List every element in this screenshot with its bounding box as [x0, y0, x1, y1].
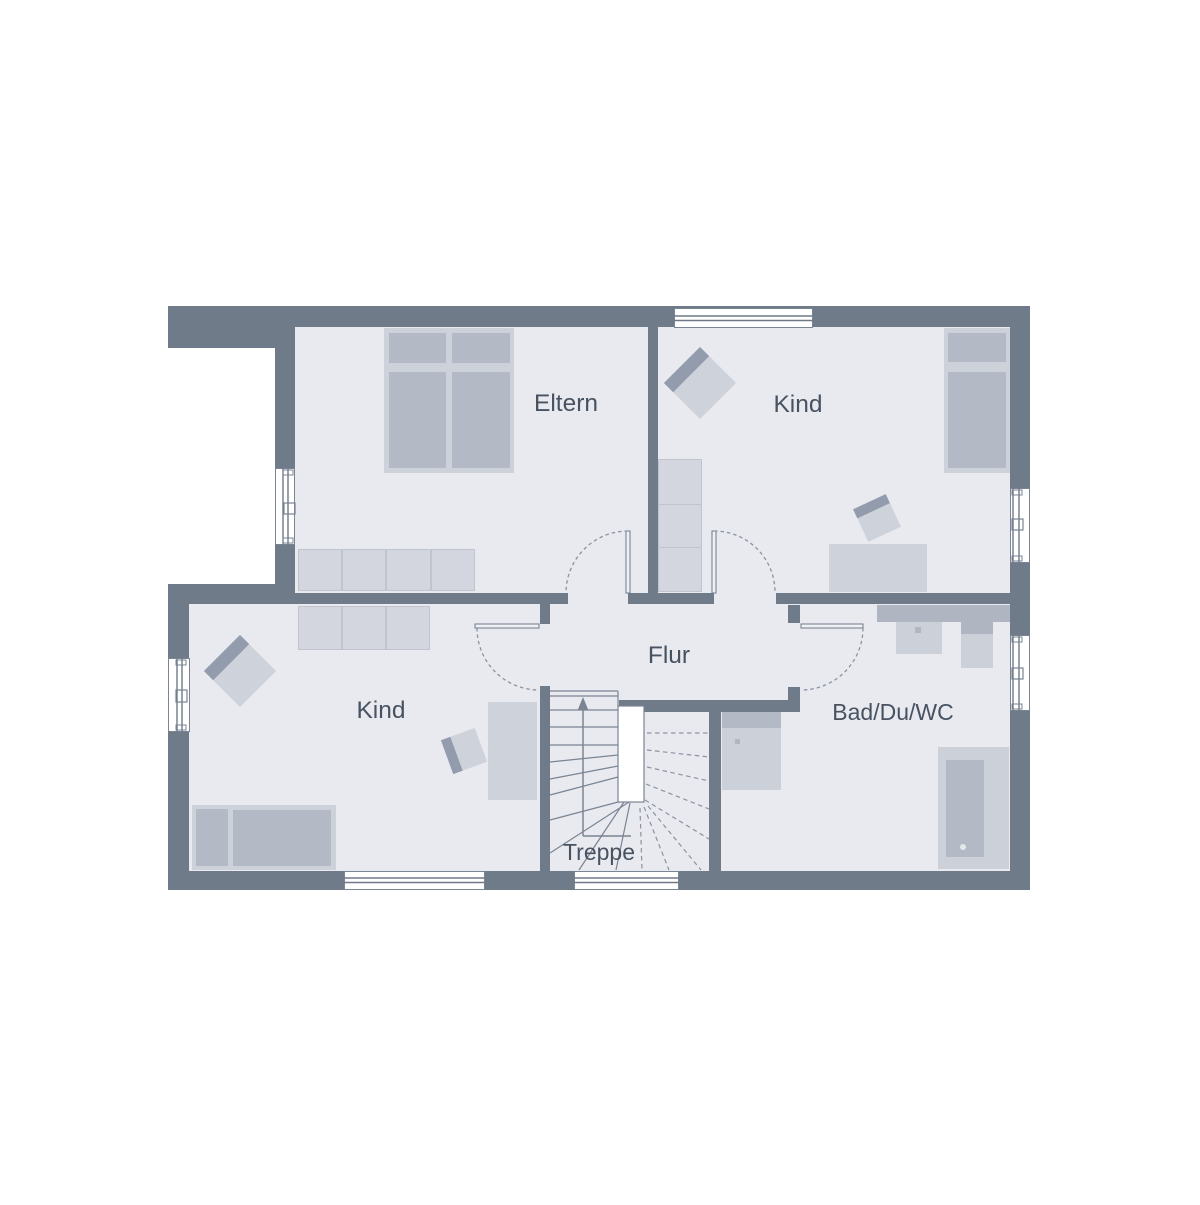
svg-text:Flur: Flur	[648, 642, 690, 669]
svg-text:Eltern: Eltern	[534, 390, 598, 417]
svg-text:Bad/Du/WC: Bad/Du/WC	[832, 699, 953, 725]
svg-text:Kind: Kind	[356, 697, 405, 724]
svg-text:Treppe: Treppe	[563, 839, 635, 865]
svg-text:Kind: Kind	[773, 391, 822, 418]
